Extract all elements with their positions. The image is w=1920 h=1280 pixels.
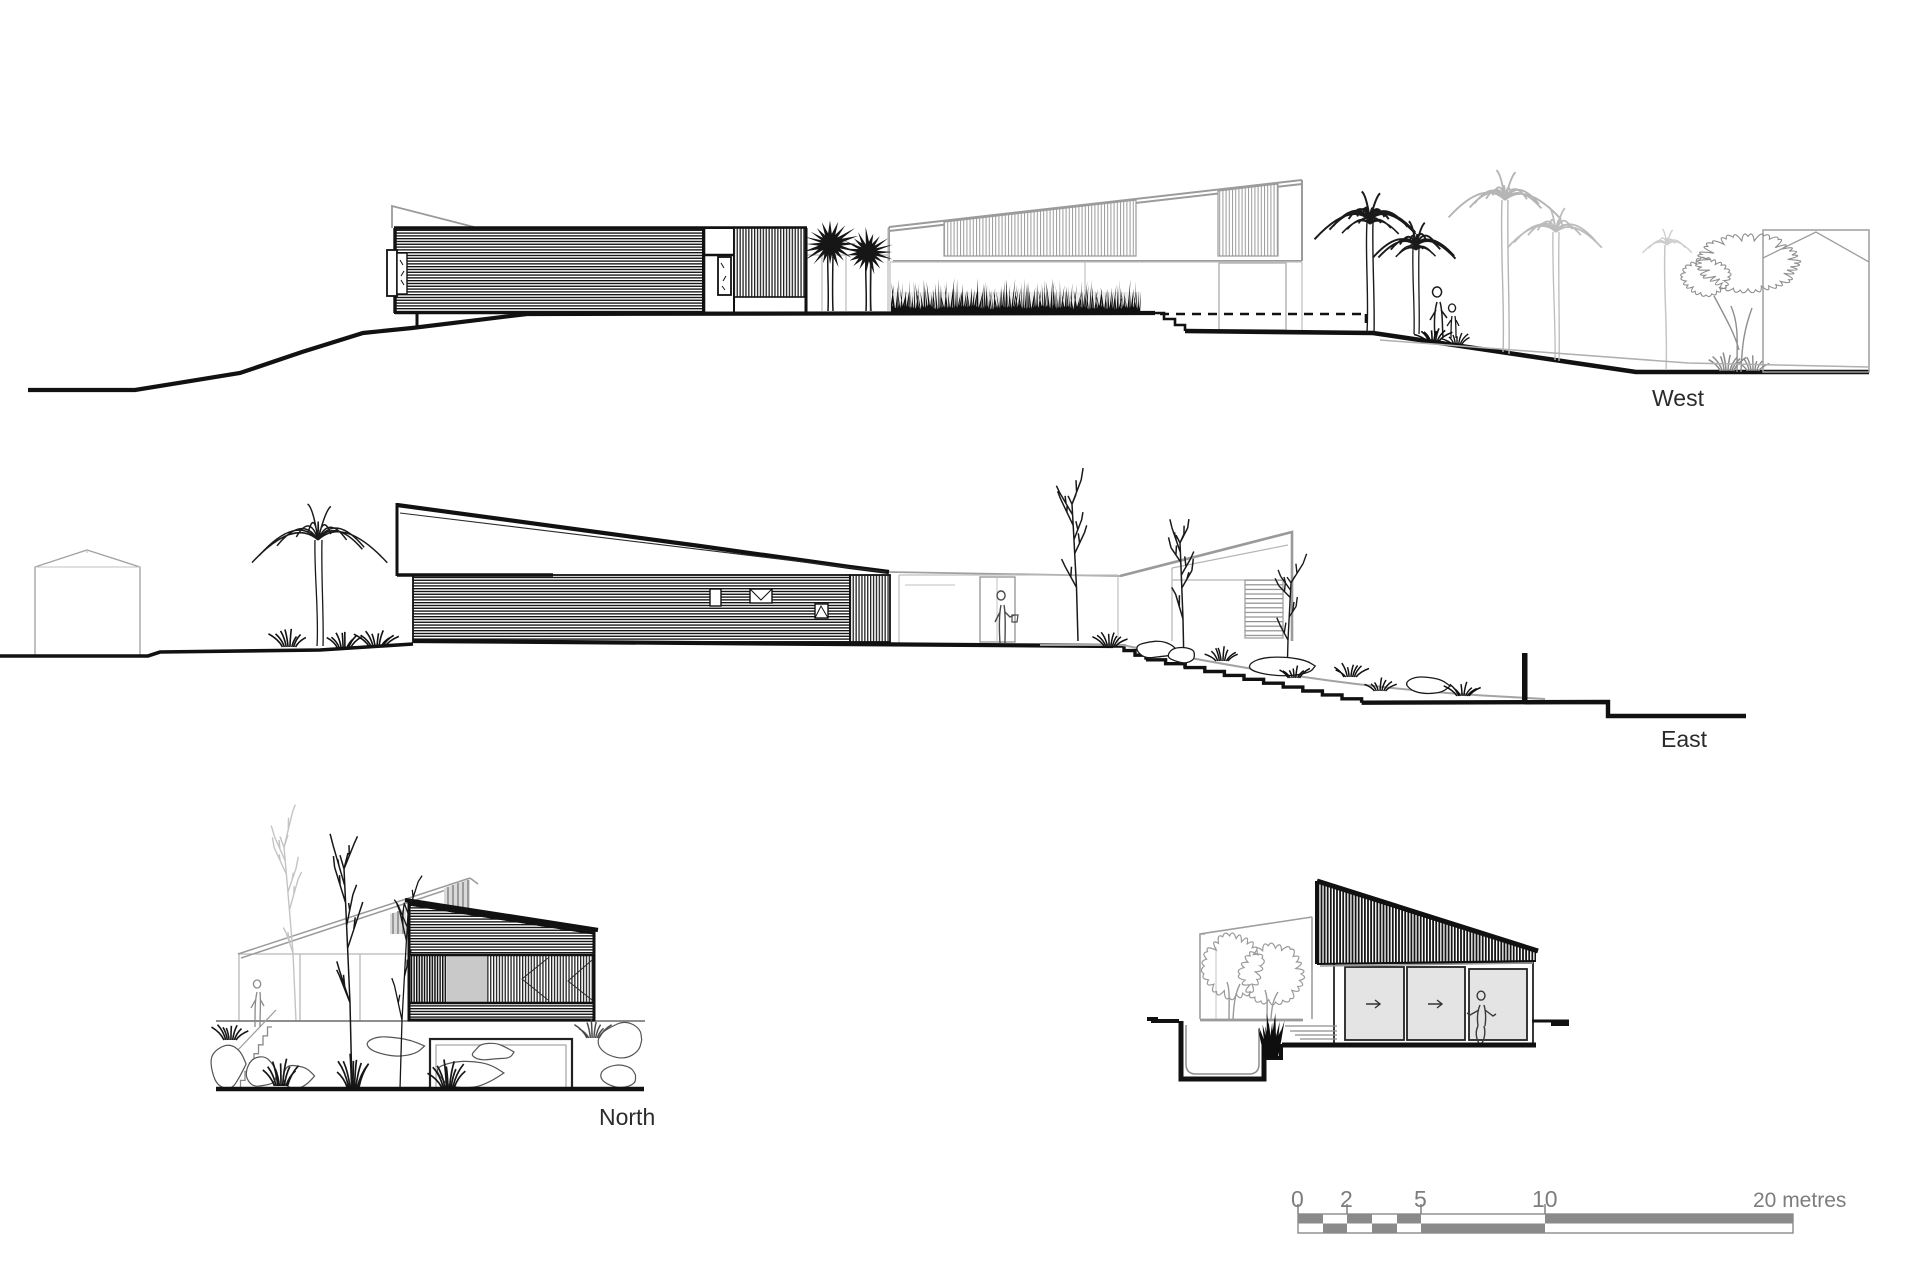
svg-text:2: 2 [1340, 1186, 1353, 1212]
svg-text:0: 0 [1291, 1186, 1304, 1212]
svg-text:20 metres: 20 metres [1753, 1189, 1846, 1212]
svg-text:10: 10 [1532, 1186, 1558, 1212]
svg-text:North: North [599, 1104, 655, 1130]
svg-text:East: East [1661, 726, 1708, 752]
svg-text:West: West [1652, 385, 1705, 411]
svg-text:5: 5 [1414, 1186, 1427, 1212]
